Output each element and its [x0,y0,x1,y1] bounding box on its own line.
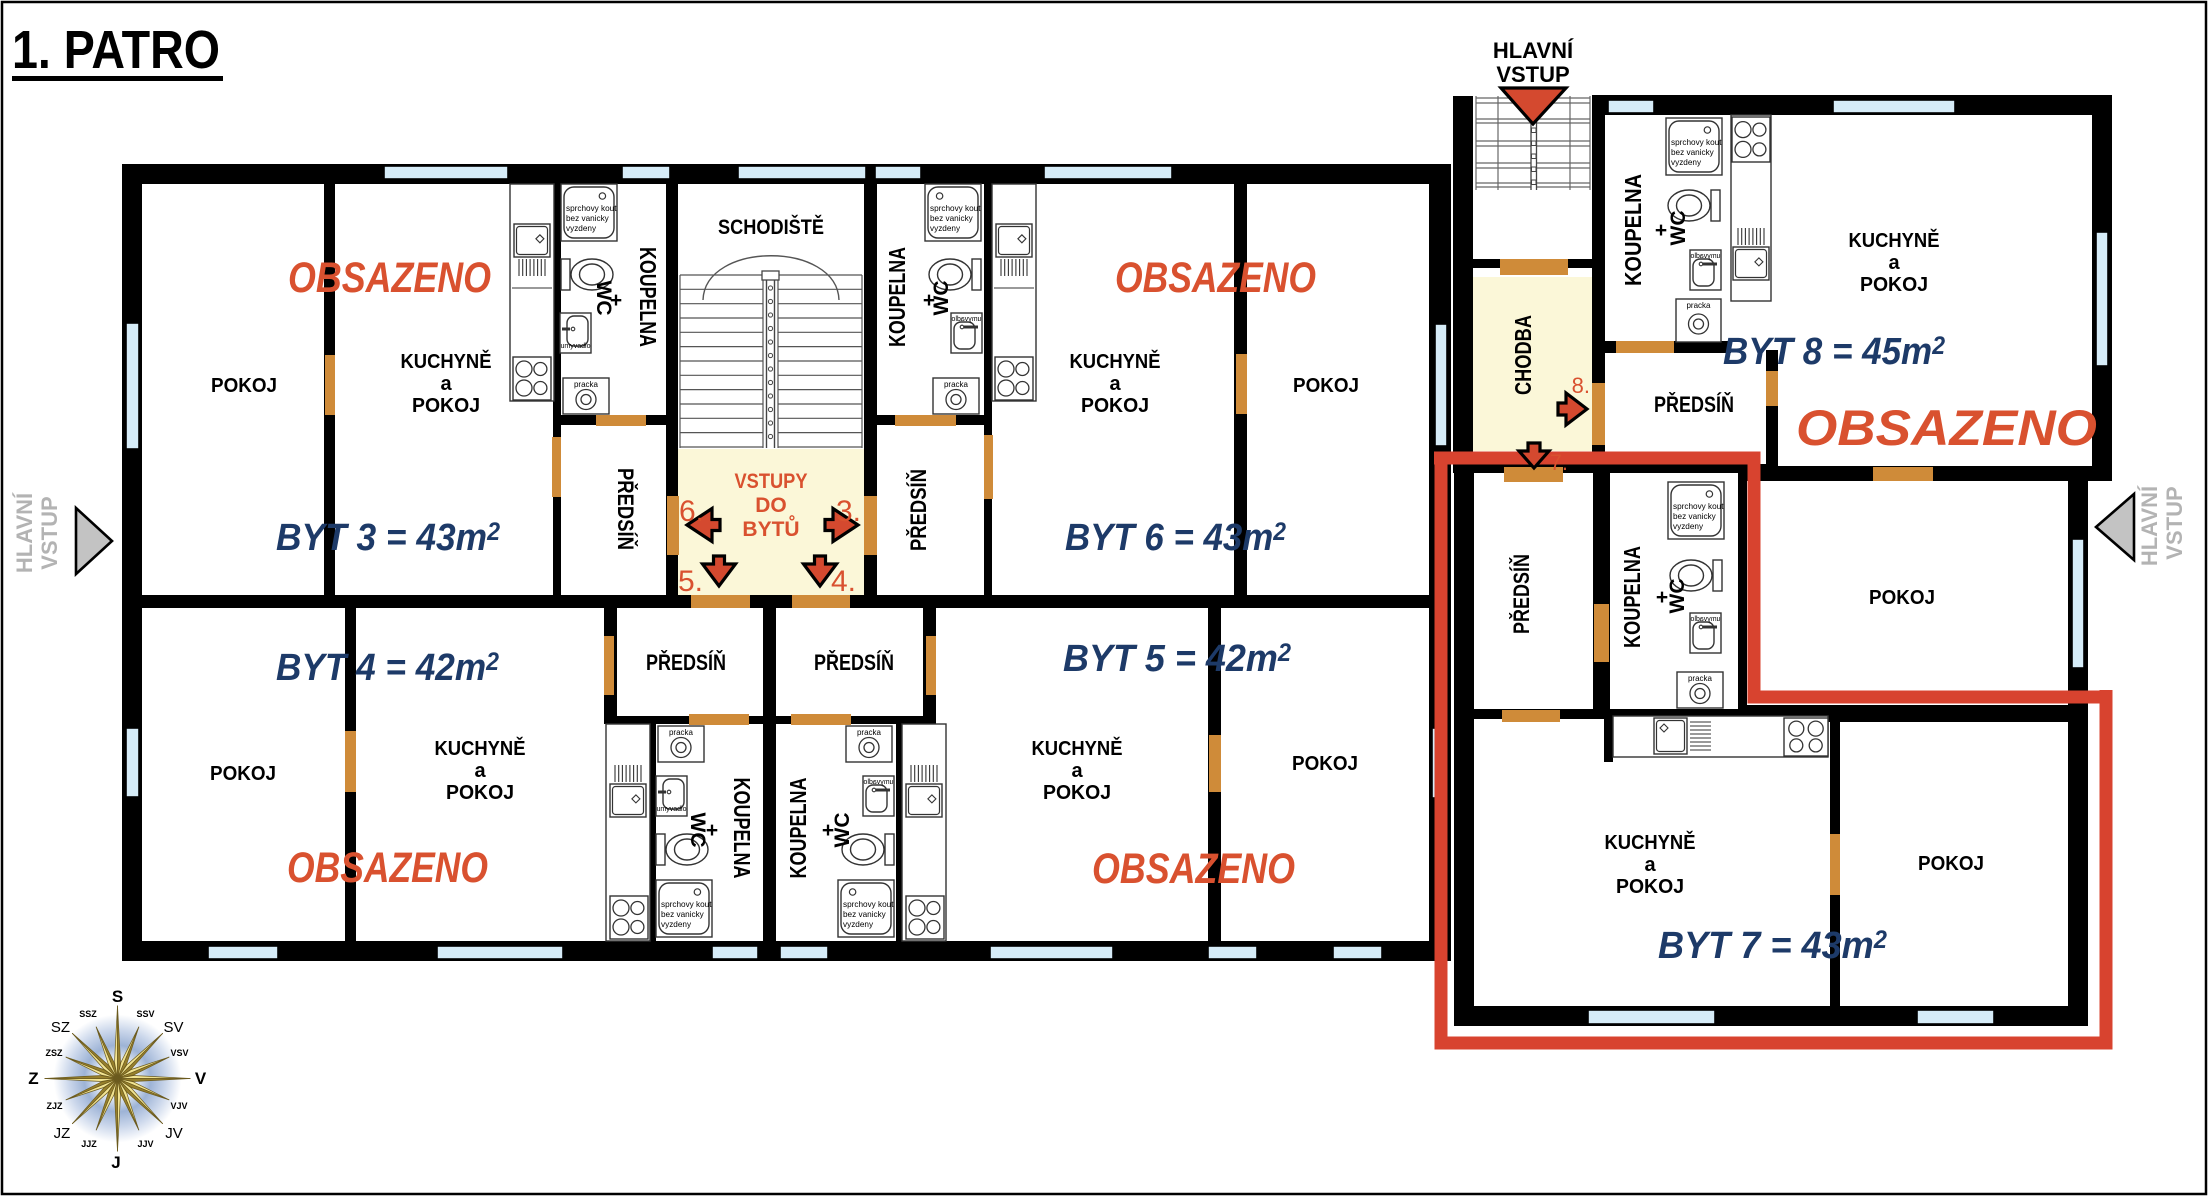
svg-text:bez vanicky: bez vanicky [661,910,705,919]
svg-text:POKOJ: POKOJ [1869,587,1935,609]
svg-text:umyvadlo: umyvadlo [1690,253,1720,260]
svg-text:HLAVNÍ: HLAVNÍ [1493,38,1574,63]
svg-text:POKOJ: POKOJ [1918,853,1984,875]
svg-text:SCHODIŠTĚ: SCHODIŠTĚ [718,215,824,239]
svg-text:BYT 8 = 45m2: BYT 8 = 45m2 [1723,331,1945,373]
svg-text:KUCHYNĚ: KUCHYNĚ [1032,736,1123,760]
svg-text:vyzdeny: vyzdeny [843,920,874,929]
svg-text:POKOJ: POKOJ [211,375,277,397]
svg-text:OBSAZENO: OBSAZENO [1092,845,1295,893]
svg-text:4.: 4. [831,565,856,598]
svg-text:sprchovy kout: sprchovy kout [1673,502,1724,511]
svg-text:KOUPELNA: KOUPELNA [635,247,661,347]
svg-text:+: + [822,819,834,842]
svg-text:POKOJ: POKOJ [1081,395,1149,417]
svg-text:6.: 6. [679,495,704,528]
svg-text:OBSAZENO: OBSAZENO [1115,254,1316,302]
svg-text:JV: JV [165,1125,183,1142]
svg-text:sprchovy kout: sprchovy kout [566,204,617,213]
svg-text:a: a [1644,854,1656,876]
svg-text:a: a [1109,373,1121,395]
svg-text:JJV: JJV [137,1139,153,1149]
svg-text:+: + [610,289,622,312]
svg-text:3.: 3. [836,495,861,528]
svg-text:PŘEDSÍŇ: PŘEDSÍŇ [906,469,931,551]
svg-text:umyvadlo: umyvadlo [863,779,893,786]
svg-text:KOUPELNA: KOUPELNA [884,247,910,347]
svg-text:PŘEDSÍŇ: PŘEDSÍŇ [814,650,894,675]
svg-text:pracka: pracka [944,380,969,389]
svg-text:BYT 3 = 43m2: BYT 3 = 43m2 [276,517,500,559]
svg-text:PŘEDSÍŇ: PŘEDSÍŇ [613,468,638,550]
svg-text:POKOJ: POKOJ [1292,753,1358,775]
svg-text:1. PATRO: 1. PATRO [12,20,220,80]
svg-text:umyvadlo: umyvadlo [657,806,687,813]
svg-text:VSTUPY: VSTUPY [735,470,808,493]
svg-text:BYT 4 = 42m2: BYT 4 = 42m2 [276,647,499,689]
svg-text:JZ: JZ [54,1125,71,1142]
svg-text:VSTUP: VSTUP [37,496,62,569]
svg-text:ZSZ: ZSZ [46,1048,64,1058]
svg-text:pracka: pracka [857,728,882,737]
svg-text:7.: 7. [1550,450,1568,475]
svg-text:umyvadlo: umyvadlo [561,343,591,350]
svg-text:POKOJ: POKOJ [1860,274,1928,296]
svg-text:8.: 8. [1572,373,1590,398]
svg-text:WC: WC [1667,211,1690,246]
svg-text:bez vanicky: bez vanicky [566,214,610,223]
svg-text:VSV: VSV [170,1048,188,1058]
svg-text:POKOJ: POKOJ [446,782,514,804]
svg-text:KUCHYNĚ: KUCHYNĚ [401,349,492,373]
svg-text:SZ: SZ [51,1019,70,1036]
svg-text:vyzdeny: vyzdeny [1671,158,1702,167]
svg-text:VJV: VJV [170,1101,187,1111]
svg-text:sprchovy kout: sprchovy kout [661,900,712,909]
svg-text:BYTŮ: BYTŮ [742,515,799,541]
svg-text:sprchovy kout: sprchovy kout [930,204,981,213]
svg-text:a: a [1888,252,1900,274]
svg-text:vyzdeny: vyzdeny [566,224,597,233]
svg-text:SSV: SSV [136,1009,154,1019]
svg-text:S: S [112,987,123,1006]
svg-text:OBSAZENO: OBSAZENO [1796,400,2097,456]
svg-text:pracka: pracka [574,380,599,389]
svg-text:bez vanicky: bez vanicky [1673,512,1717,521]
svg-text:a: a [1071,760,1083,782]
svg-text:umyvadlo: umyvadlo [1690,616,1720,623]
svg-text:V: V [195,1069,207,1088]
svg-text:PŘEDSÍŇ: PŘEDSÍŇ [646,650,726,675]
svg-text:SV: SV [163,1019,183,1036]
svg-text:bez vanicky: bez vanicky [930,214,974,223]
svg-text:SSZ: SSZ [79,1009,97,1019]
svg-text:KUCHYNĚ: KUCHYNĚ [1070,349,1161,373]
svg-text:WC: WC [1666,579,1689,614]
svg-text:KUCHYNĚ: KUCHYNĚ [435,736,526,760]
svg-text:POKOJ: POKOJ [412,395,480,417]
svg-text:VSTUP: VSTUP [1496,62,1569,87]
svg-text:PŘEDSÍŇ: PŘEDSÍŇ [1654,392,1734,417]
svg-text:KOUPELNA: KOUPELNA [785,778,811,879]
svg-text:pracka: pracka [1688,674,1713,683]
svg-text:sprchovy kout: sprchovy kout [1671,138,1722,147]
svg-text:BYT 5 = 42m2: BYT 5 = 42m2 [1063,638,1291,680]
svg-text:+: + [923,289,935,312]
svg-text:HLAVNÍ: HLAVNÍ [2137,485,2162,566]
svg-text:JJZ: JJZ [81,1139,97,1149]
svg-text:KOUPELNA: KOUPELNA [1619,546,1645,648]
svg-text:+: + [1656,586,1668,609]
svg-text:vyzdeny: vyzdeny [1673,522,1704,531]
svg-text:CHODBA: CHODBA [1510,315,1536,395]
svg-text:vyzdeny: vyzdeny [930,224,961,233]
svg-text:BYT 6 = 43m2: BYT 6 = 43m2 [1065,517,1286,559]
svg-text:Z: Z [28,1069,38,1088]
svg-text:POKOJ: POKOJ [1293,375,1359,397]
svg-text:WC: WC [831,813,854,848]
svg-text:vyzdeny: vyzdeny [661,920,692,929]
svg-text:pracka: pracka [1686,301,1711,310]
svg-text:VSTUP: VSTUP [2162,486,2187,559]
svg-text:ZJZ: ZJZ [46,1101,63,1111]
svg-text:KOUPELNA: KOUPELNA [729,778,755,879]
svg-text:POKOJ: POKOJ [1043,782,1111,804]
svg-text:J: J [111,1153,120,1172]
svg-text:a: a [474,760,486,782]
svg-text:OBSAZENO: OBSAZENO [287,844,488,892]
svg-text:umyvadlo: umyvadlo [951,316,981,323]
svg-text:bez vanicky: bez vanicky [1671,148,1715,157]
svg-text:KUCHYNĚ: KUCHYNĚ [1605,830,1696,854]
svg-text:OBSAZENO: OBSAZENO [288,254,491,302]
svg-text:PŘEDSÍŇ: PŘEDSÍŇ [1509,554,1534,634]
svg-text:a: a [440,373,452,395]
svg-text:POKOJ: POKOJ [1616,876,1684,898]
svg-text:+: + [1655,219,1667,242]
svg-text:HLAVNÍ: HLAVNÍ [12,492,37,573]
svg-text:KOUPELNA: KOUPELNA [1620,174,1646,286]
svg-text:KUCHYNĚ: KUCHYNĚ [1849,228,1940,252]
svg-text:POKOJ: POKOJ [210,763,276,785]
svg-text:pracka: pracka [669,728,694,737]
svg-text:sprchovy kout: sprchovy kout [843,900,894,909]
svg-text:DO: DO [755,494,787,517]
svg-text:bez vanicky: bez vanicky [843,910,887,919]
svg-text:5.: 5. [678,565,703,598]
svg-text:BYT 7 = 43m2: BYT 7 = 43m2 [1658,925,1887,967]
svg-text:+: + [706,819,718,842]
